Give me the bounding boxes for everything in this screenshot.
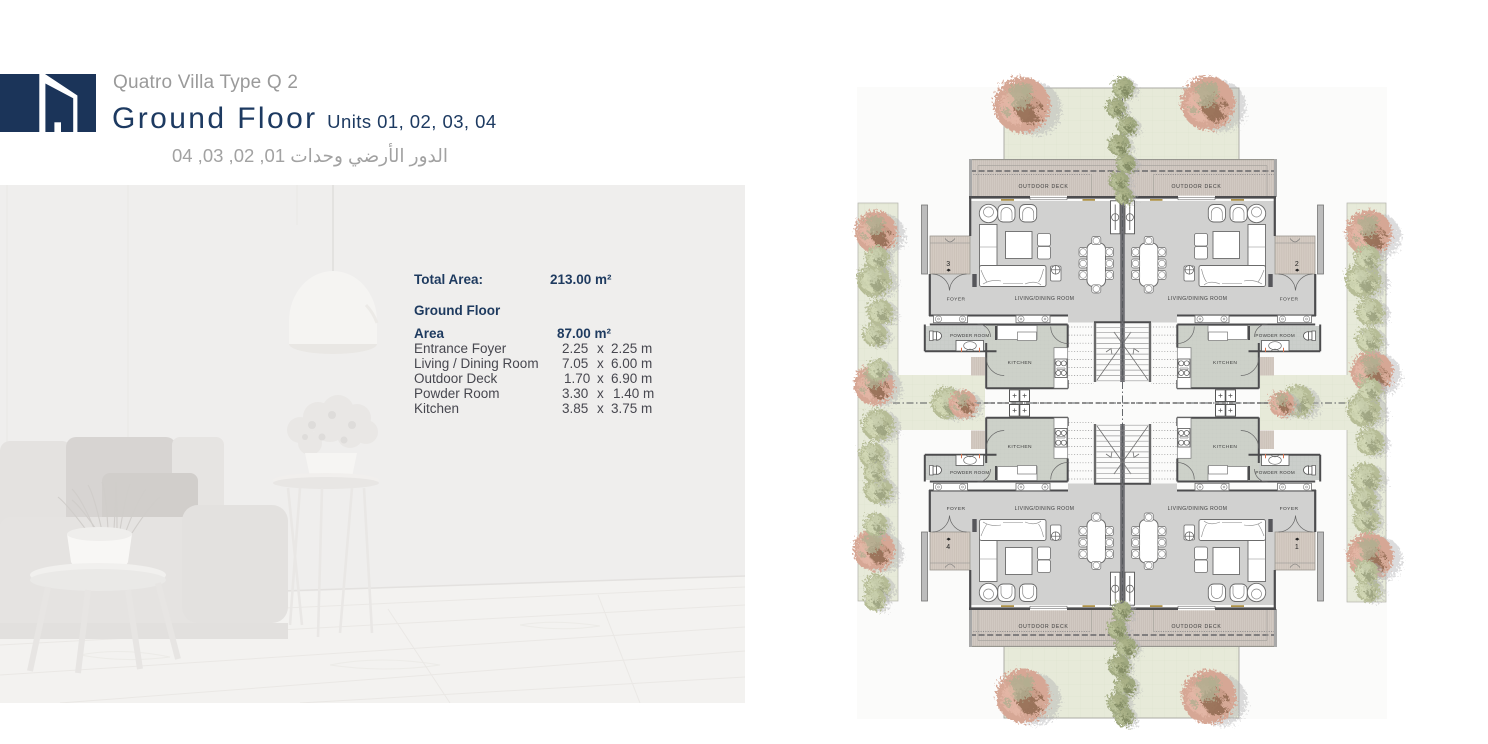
svg-text:KITCHEN: KITCHEN [1213, 444, 1237, 450]
svg-text:3: 3 [946, 261, 950, 268]
svg-text:POWDER ROOM: POWDER ROOM [950, 470, 990, 475]
svg-text:KITCHEN: KITCHEN [1008, 444, 1032, 450]
svg-text:POWDER ROOM: POWDER ROOM [1255, 333, 1295, 338]
svg-text:FOYER: FOYER [947, 296, 966, 302]
svg-text:KITCHEN: KITCHEN [1213, 360, 1237, 366]
svg-text:2: 2 [1295, 261, 1299, 268]
svg-text:KITCHEN: KITCHEN [1008, 360, 1032, 366]
svg-text:POWDER ROOM: POWDER ROOM [1255, 470, 1295, 475]
svg-text:FOYER: FOYER [947, 506, 966, 512]
svg-text:OUTDOOR DECK: OUTDOOR DECK [1018, 184, 1068, 190]
svg-text:LIVING/DINING ROOM: LIVING/DINING ROOM [1168, 506, 1228, 512]
svg-text:FOYER: FOYER [1280, 296, 1299, 302]
svg-text:OUTDOOR DECK: OUTDOOR DECK [1171, 184, 1221, 190]
svg-text:OUTDOOR DECK: OUTDOOR DECK [1171, 624, 1221, 630]
svg-text:LIVING/DINING ROOM: LIVING/DINING ROOM [1015, 506, 1075, 512]
svg-text:LIVING/DINING ROOM: LIVING/DINING ROOM [1168, 296, 1228, 302]
svg-text:FOYER: FOYER [1280, 506, 1299, 512]
svg-text:POWDER ROOM: POWDER ROOM [950, 333, 990, 338]
svg-text:1: 1 [1295, 544, 1299, 551]
svg-text:4: 4 [946, 544, 950, 551]
svg-text:LIVING/DINING ROOM: LIVING/DINING ROOM [1015, 296, 1075, 302]
svg-text:OUTDOOR DECK: OUTDOOR DECK [1018, 624, 1068, 630]
